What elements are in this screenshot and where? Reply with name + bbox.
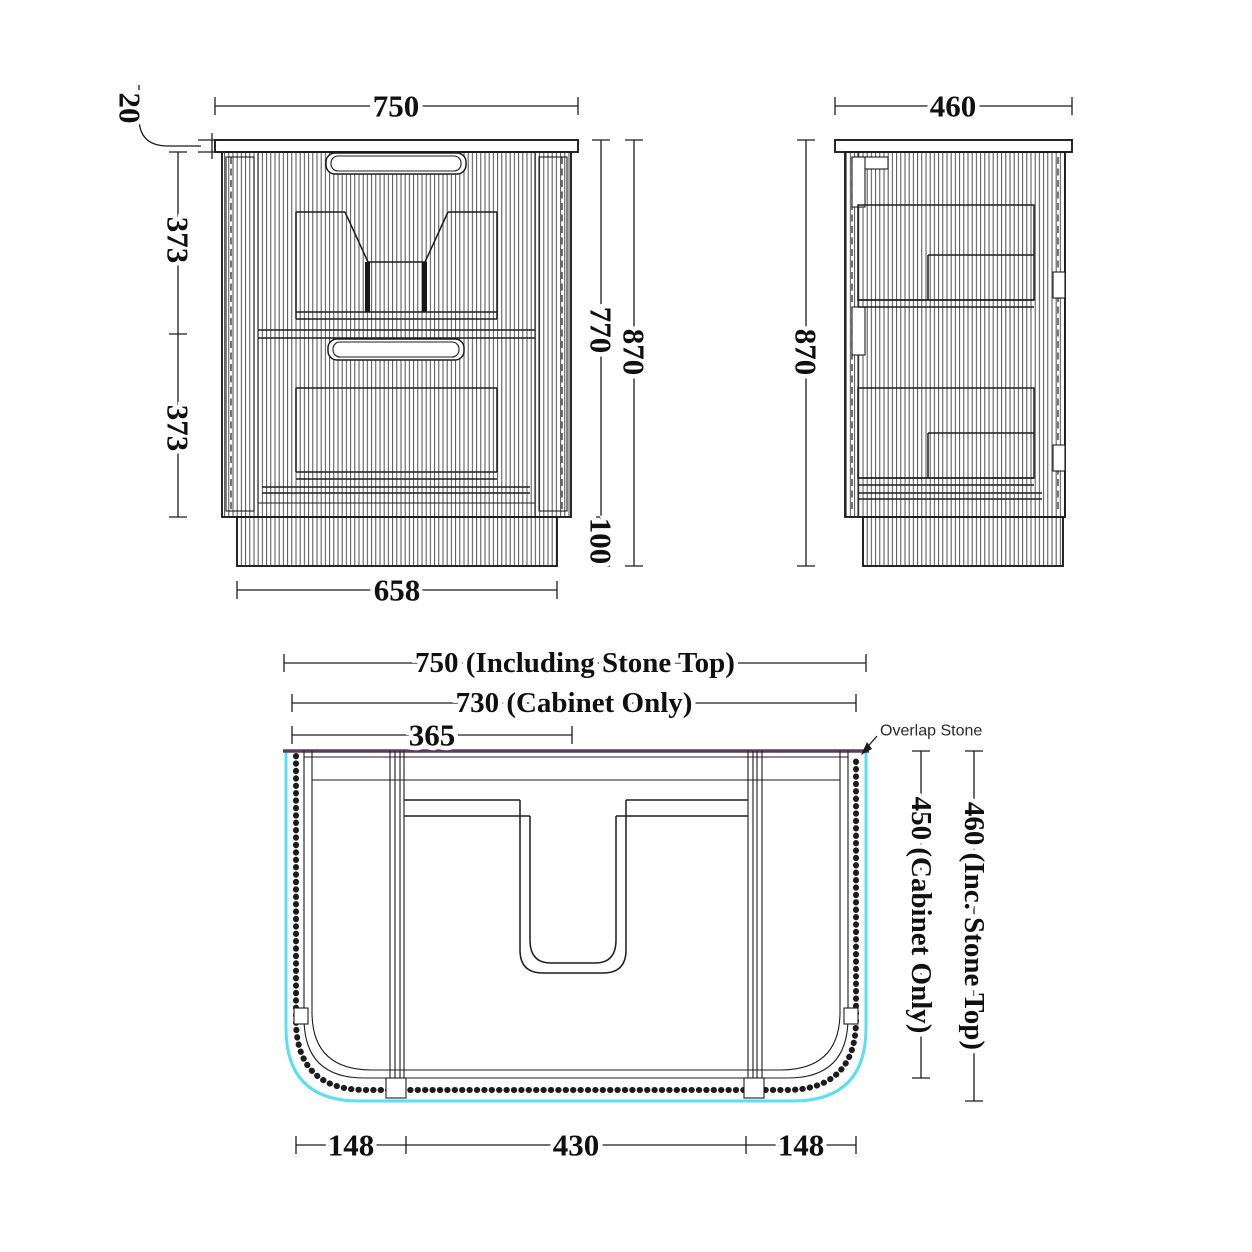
technical-drawing-canvas: 750 20 373 373 770 100 870 658 bbox=[0, 0, 1252, 1252]
dim-front-width-label: 750 bbox=[373, 89, 420, 124]
overlap-stone-label: Overlap Stone bbox=[880, 723, 982, 740]
plan-partition-right bbox=[744, 751, 764, 1098]
dim-lower-section-label: 373 bbox=[161, 405, 196, 452]
dim-plan-center-width-label: 430 bbox=[553, 1128, 600, 1163]
dim-side-depth: 460 bbox=[835, 89, 1072, 124]
plan-sink-cutout bbox=[404, 800, 748, 973]
sink-clearance-bar-right bbox=[422, 262, 427, 312]
dim-plan-cabinet-width: 730 (Cabinet Only) bbox=[292, 687, 856, 719]
plan-overlap-note: Overlap Stone bbox=[861, 723, 982, 756]
front-kickboard bbox=[237, 517, 557, 566]
front-handle-recess-top bbox=[326, 153, 466, 174]
dim-total-height-label: 870 bbox=[617, 329, 652, 376]
dim-plan-cabinet-width-label: 730 (Cabinet Only) bbox=[456, 687, 693, 719]
side-cabinet-body bbox=[845, 152, 1065, 517]
dim-front-left-sections: 373 373 bbox=[161, 152, 196, 517]
plan-back-rail bbox=[304, 757, 848, 780]
plan-partition-left-foot bbox=[386, 1078, 406, 1098]
dim-side-height-label: 870 bbox=[789, 329, 824, 376]
dim-body-height-label: 770 bbox=[584, 307, 619, 354]
dim-side-height: 870 bbox=[789, 140, 824, 566]
dim-front-stone-thickness: 20 bbox=[113, 85, 231, 159]
plan-fluted-edge-beads bbox=[296, 756, 856, 1090]
plan-view bbox=[283, 751, 869, 1101]
dim-plan-half-width: 365 bbox=[292, 718, 572, 753]
front-handle-recess-bottom bbox=[328, 339, 464, 360]
dim-plan-cabinet-depth-label: 450 (Cabinet Only) bbox=[905, 797, 937, 1034]
dim-front-width: 750 bbox=[215, 89, 578, 124]
dim-kick-width-label: 658 bbox=[374, 573, 421, 608]
dim-plan-half-width-label: 365 bbox=[409, 718, 456, 753]
dim-plan-overall-width: 750 (Including Stone Top) bbox=[284, 647, 866, 679]
side-stone-top bbox=[835, 140, 1072, 152]
dim-front-kick-height: 100 bbox=[584, 517, 619, 566]
front-stone-top bbox=[215, 140, 578, 152]
dim-side-depth-label: 460 bbox=[930, 89, 977, 124]
plan-cabinet-wall-inner bbox=[312, 751, 840, 1070]
dim-plan-left-offset-label: 148 bbox=[328, 1128, 375, 1163]
dim-plan-bottom: 148 430 148 bbox=[296, 1128, 856, 1163]
dim-kick-height-label: 100 bbox=[584, 518, 619, 565]
dim-stone-thickness-label: 20 bbox=[113, 93, 148, 124]
plan-partition-left bbox=[386, 751, 406, 1098]
front-view bbox=[215, 140, 578, 566]
dim-plan-cabinet-depth: 450 (Cabinet Only) bbox=[905, 751, 937, 1078]
plan-cabinet-wall-outer bbox=[304, 751, 848, 1078]
dim-upper-section-label: 373 bbox=[161, 217, 196, 264]
dim-plan-overall-width-label: 750 (Including Stone Top) bbox=[415, 647, 735, 679]
plan-corner-block-left bbox=[294, 1008, 308, 1024]
sink-clearance-bar-left bbox=[365, 262, 370, 312]
dim-front-total-height: 870 bbox=[617, 140, 652, 566]
plan-stone-outline bbox=[286, 751, 866, 1101]
dim-plan-overall-depth-label: 460 (Inc. Stone Top) bbox=[958, 802, 990, 1050]
drawing-sheet: 750 20 373 373 770 100 870 658 bbox=[0, 0, 1252, 1252]
plan-partition-right-foot bbox=[744, 1078, 764, 1098]
dim-plan-overall-depth: 460 (Inc. Stone Top) bbox=[958, 751, 990, 1101]
dim-front-kick-width: 658 bbox=[237, 573, 557, 608]
side-kickboard bbox=[863, 517, 1063, 566]
dim-front-body-height: 770 bbox=[584, 140, 619, 517]
dim-plan-right-offset-label: 148 bbox=[778, 1128, 825, 1163]
plan-corner-block-right bbox=[844, 1008, 858, 1024]
front-cabinet-body bbox=[222, 152, 571, 517]
side-view bbox=[835, 140, 1072, 566]
